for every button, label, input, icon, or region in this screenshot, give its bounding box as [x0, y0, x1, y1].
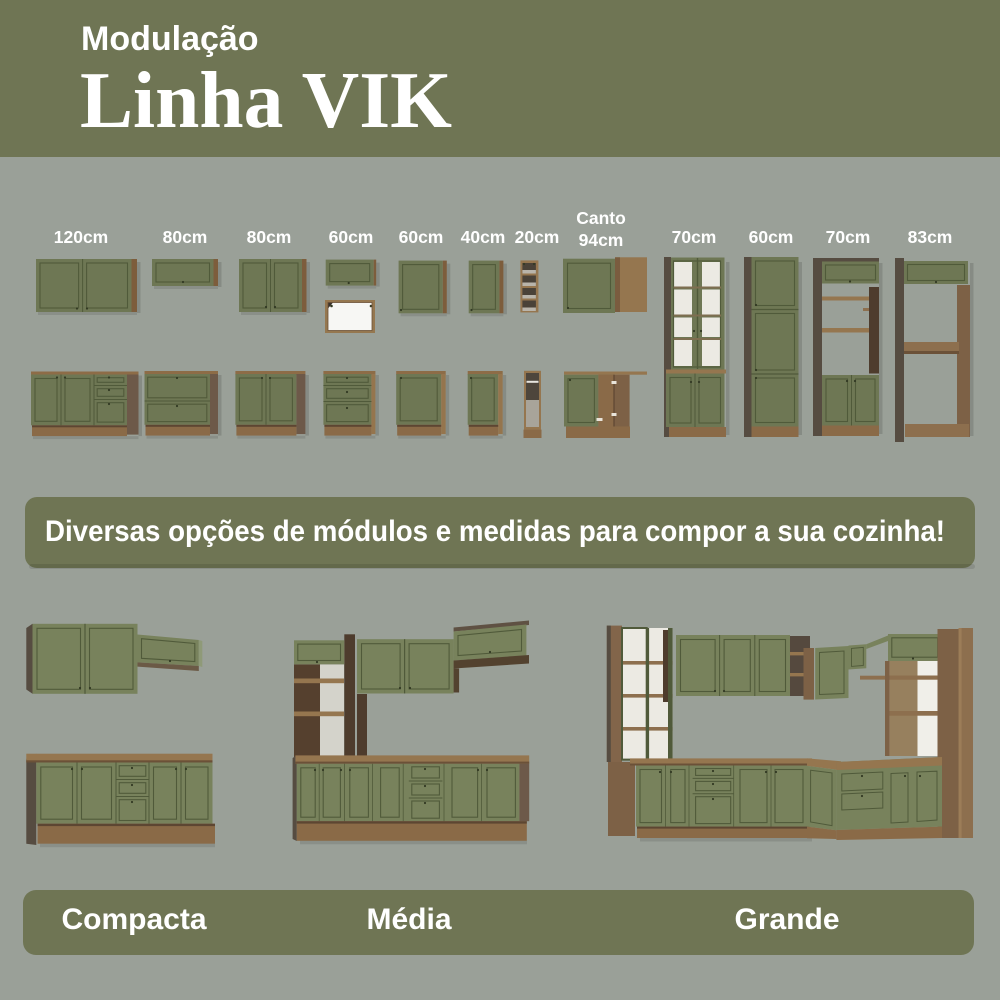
svg-text:Canto: Canto — [576, 208, 626, 228]
svg-text:70cm: 70cm — [672, 227, 717, 247]
svg-text:60cm: 60cm — [749, 227, 794, 247]
svg-text:Diversas opções de módulos e m: Diversas opções de módulos e medidas par… — [45, 515, 945, 548]
svg-text:Compacta: Compacta — [61, 903, 206, 936]
svg-text:60cm: 60cm — [399, 227, 444, 247]
svg-text:70cm: 70cm — [826, 227, 871, 247]
svg-text:20cm: 20cm — [515, 227, 560, 247]
svg-text:80cm: 80cm — [247, 227, 292, 247]
svg-text:60cm: 60cm — [329, 227, 374, 247]
svg-text:40cm: 40cm — [461, 227, 506, 247]
svg-text:Média: Média — [366, 903, 451, 936]
svg-text:94cm: 94cm — [579, 230, 624, 250]
svg-text:Grande: Grande — [734, 903, 839, 936]
svg-text:Modulação: Modulação — [81, 20, 259, 58]
svg-text:80cm: 80cm — [163, 227, 208, 247]
svg-text:120cm: 120cm — [54, 227, 109, 247]
svg-text:83cm: 83cm — [908, 227, 953, 247]
svg-text:Linha VIK: Linha VIK — [80, 57, 452, 145]
